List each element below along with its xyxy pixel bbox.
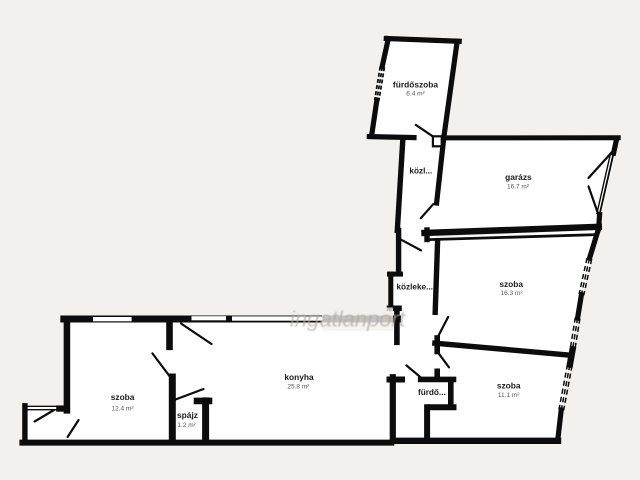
svg-text:1.2 m²: 1.2 m² (177, 422, 196, 429)
svg-text:ingatlanport: ingatlanport (290, 307, 406, 332)
svg-text:16.3 m²: 16.3 m² (500, 290, 523, 297)
svg-text:konyha: konyha (284, 372, 314, 382)
svg-text:spájz: spájz (177, 410, 198, 420)
svg-text:szoba: szoba (111, 392, 135, 402)
svg-text:6.4 m²: 6.4 m² (406, 91, 425, 98)
svg-text:11.1 m²: 11.1 m² (498, 392, 520, 399)
svg-text:12.4 m²: 12.4 m² (111, 406, 134, 413)
svg-text:szoba: szoba (497, 381, 521, 391)
svg-text:fürdő...: fürdő... (418, 388, 446, 397)
svg-text:garázs: garázs (505, 172, 532, 182)
svg-text:közleke...: közleke... (396, 282, 432, 291)
svg-text:16.7 m²: 16.7 m² (507, 184, 530, 191)
svg-text:fürdőszoba: fürdőszoba (393, 80, 438, 90)
svg-text:szoba: szoba (499, 279, 523, 289)
svg-text:közl...: közl... (409, 166, 432, 175)
svg-text:25.8 m²: 25.8 m² (287, 383, 310, 390)
